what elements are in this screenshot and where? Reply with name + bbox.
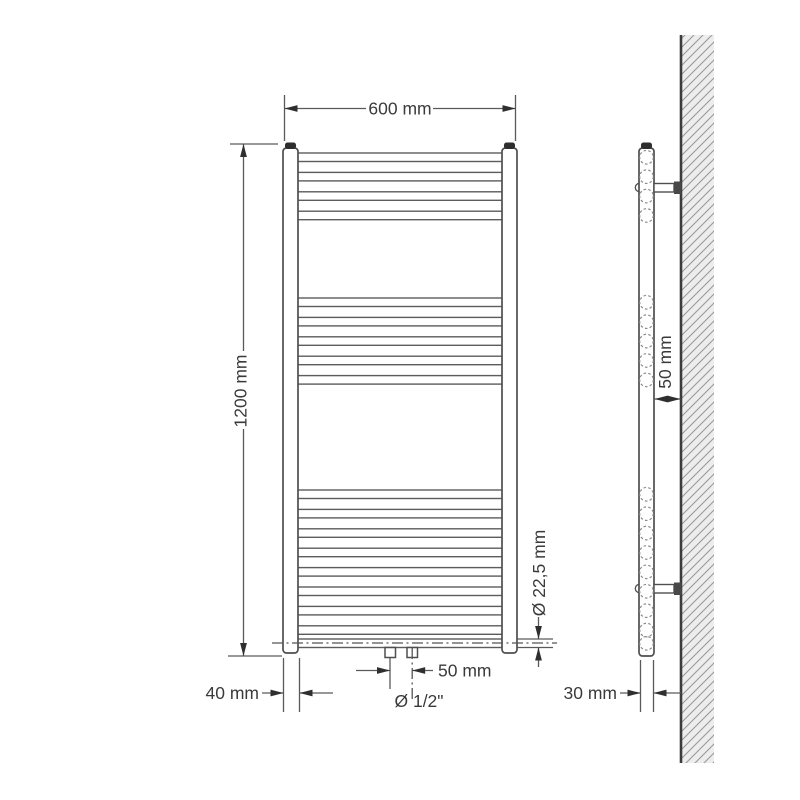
dim-arrowhead [412, 667, 425, 674]
wall-bracket-bottom [654, 585, 674, 594]
wall-bracket-bottom-anchor [674, 583, 682, 596]
dim-arrowhead [535, 626, 542, 639]
dim-arrowhead [240, 643, 247, 656]
dim-arrowhead [285, 105, 298, 112]
rung [298, 568, 503, 577]
wall-bracket-top-anchor [674, 182, 682, 195]
dimension-height-1200: 1200 mm [228, 144, 282, 656]
rung [298, 529, 503, 538]
left-tube-cap [285, 143, 296, 150]
dim-arrowhead [655, 396, 668, 403]
rung [298, 356, 503, 365]
rung [298, 587, 503, 596]
rung [298, 317, 503, 326]
rung [298, 626, 503, 635]
dim-tube-width-label: 40 mm [206, 683, 259, 703]
drawing-svg: 600 mm 1200 mm 40 mm 50 mm Ø 1/2" Ø 22,5… [0, 0, 800, 800]
dim-arrowhead [240, 144, 247, 157]
wall-hatch [681, 35, 714, 763]
front-view [272, 143, 557, 658]
dimension-rung-diameter: Ø 22,5 mm [518, 530, 554, 667]
rung [298, 192, 503, 201]
rung [298, 337, 503, 346]
rung [298, 153, 503, 162]
dim-arrowhead [503, 105, 516, 112]
rung [298, 172, 503, 181]
dim-depth-label: 30 mm [564, 683, 617, 703]
wall-bracket-top [654, 184, 674, 193]
left-collector-tube [283, 148, 298, 653]
dim-width-label: 600 mm [368, 99, 431, 119]
dim-height-label: 1200 mm [231, 355, 251, 428]
rung-group [298, 153, 503, 648]
dim-wall-clearance-label: 50 mm [655, 335, 675, 388]
rung [298, 211, 503, 220]
dim-arrowhead [535, 648, 542, 661]
dimension-width-600: 600 mm [285, 95, 516, 141]
dim-arrowhead [628, 690, 641, 697]
right-collector-tube [502, 148, 517, 653]
dimension-depth-30: 30 mm [564, 660, 681, 712]
rung [298, 509, 503, 518]
side-tube [639, 148, 654, 656]
radiator-technical-drawing: 600 mm 1200 mm 40 mm 50 mm Ø 1/2" Ø 22,5… [0, 0, 800, 800]
dim-rung-diameter-label: Ø 22,5 mm [529, 530, 549, 617]
dimension-wall-clearance-50: 50 mm [655, 335, 681, 399]
rung [298, 548, 503, 557]
connection-stub-left [385, 648, 396, 658]
rung [298, 376, 503, 385]
dim-arrowhead [654, 690, 667, 697]
dim-arrowhead [271, 690, 284, 697]
dim-connection-spacing-label: 50 mm [438, 661, 491, 681]
dim-arrowhead [377, 667, 390, 674]
dimension-connection-50: 50 mm Ø 1/2" [356, 648, 491, 711]
dim-arrowhead [300, 690, 313, 697]
rung [298, 490, 503, 499]
side-tube-cap [641, 143, 652, 150]
dim-arrowhead [668, 396, 681, 403]
connection-size-label: Ø 1/2" [394, 691, 443, 711]
rung [298, 606, 503, 615]
right-tube-cap [504, 143, 515, 150]
rung [298, 298, 503, 307]
dimension-collector-40: 40 mm [206, 658, 333, 712]
